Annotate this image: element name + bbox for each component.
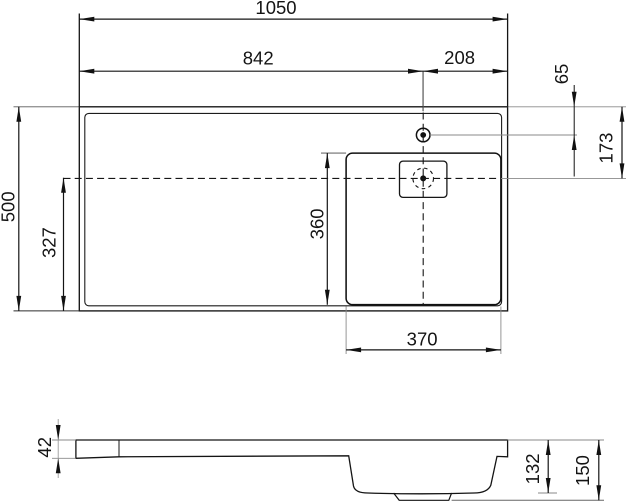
svg-text:360: 360 [307,208,328,239]
svg-text:1050: 1050 [255,0,296,18]
svg-text:500: 500 [0,191,18,222]
svg-text:327: 327 [39,227,60,258]
svg-text:208: 208 [444,47,475,68]
svg-text:65: 65 [551,64,572,85]
svg-text:842: 842 [243,47,274,68]
svg-text:150: 150 [572,455,593,486]
svg-text:370: 370 [407,328,438,349]
svg-text:173: 173 [596,133,617,164]
svg-text:42: 42 [34,437,55,458]
svg-text:132: 132 [522,453,543,484]
